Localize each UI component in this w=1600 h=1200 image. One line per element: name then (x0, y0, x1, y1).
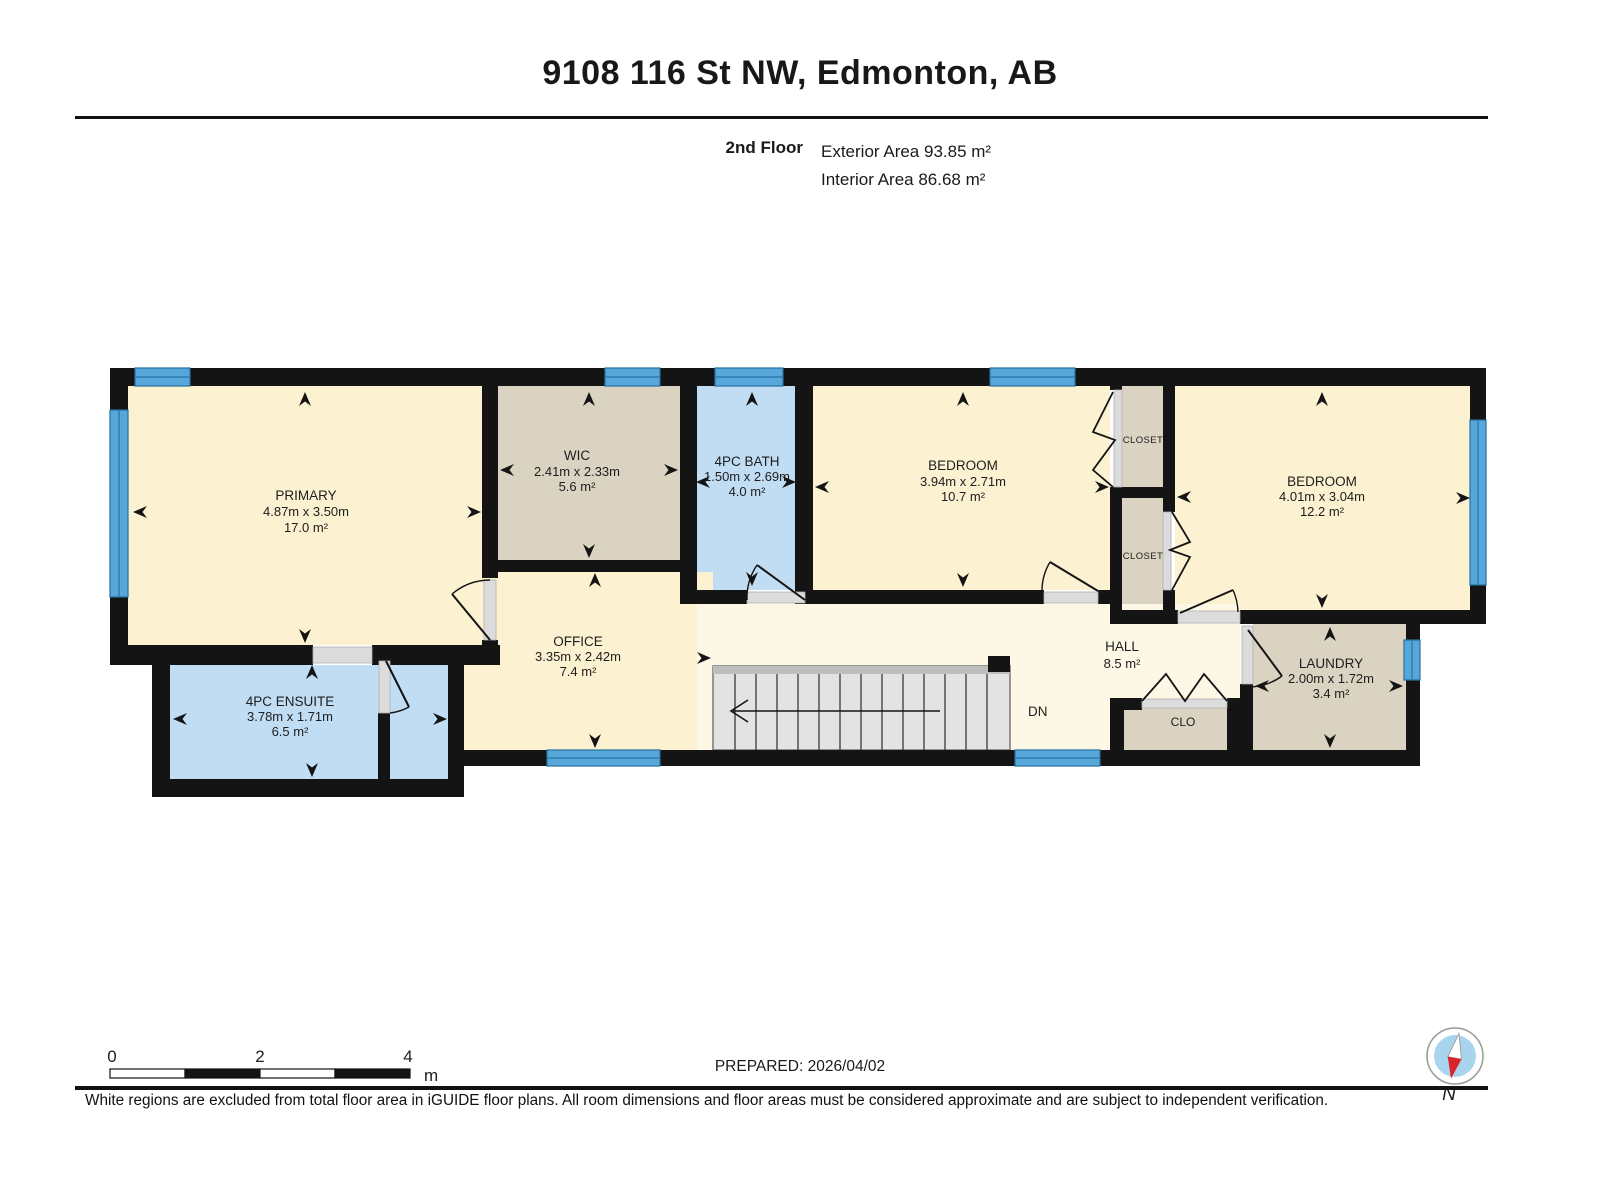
window (110, 410, 128, 597)
label-primary-dims: 4.87m x 3.50m (263, 504, 349, 519)
label-bedroom-right: BEDROOM (1287, 474, 1357, 489)
prepared-date: PREPARED: 2026/04/02 (0, 1058, 1600, 1076)
label-bedroom-middle-area: 10.7 m² (941, 489, 986, 504)
label-wic-area: 5.6 m² (559, 479, 597, 494)
label-bedroom-right-area: 12.2 m² (1300, 504, 1345, 519)
label-wic: WIC (564, 448, 590, 463)
window (1015, 750, 1100, 766)
label-bedroom-middle-dims: 3.94m x 2.71m (920, 474, 1006, 489)
label-closet-top: CLOSET (1123, 435, 1163, 446)
label-bedroom-right-dims: 4.01m x 3.04m (1279, 489, 1365, 504)
label-office-dims: 3.35m x 2.42m (535, 649, 621, 664)
window (135, 368, 190, 386)
label-hall: HALL (1105, 639, 1139, 654)
label-ensuite: 4PC ENSUITE (246, 694, 335, 709)
label-laundry: LAUNDRY (1299, 656, 1363, 671)
label-bedroom-middle: BEDROOM (928, 458, 998, 473)
label-bath: 4PC BATH (714, 454, 779, 469)
label-laundry-area: 3.4 m² (1313, 686, 1351, 701)
label-office: OFFICE (553, 634, 603, 649)
label-bath-dims: 1.50m x 2.69m (704, 469, 790, 484)
label-closet-bottom: CLOSET (1123, 551, 1163, 562)
label-ensuite-dims: 3.78m x 1.71m (247, 709, 333, 724)
window (1404, 640, 1420, 680)
label-bath-area: 4.0 m² (729, 484, 767, 499)
stairs (713, 666, 1010, 750)
label-wic-dims: 2.41m x 2.33m (534, 464, 620, 479)
disclaimer-text: White regions are excluded from total fl… (85, 1092, 1515, 1110)
label-ensuite-area: 6.5 m² (272, 724, 310, 739)
floorplan-page: 9108 116 St NW, Edmonton, AB 2nd Floor E… (0, 0, 1600, 1200)
label-stairs-dn: DN (1028, 704, 1048, 719)
stair-newel-post (988, 656, 1010, 672)
label-clo: CLO (1171, 715, 1196, 729)
label-hall-area: 8.5 m² (1104, 656, 1142, 671)
window (715, 368, 783, 386)
label-laundry-dims: 2.00m x 1.72m (1288, 671, 1374, 686)
label-primary: PRIMARY (275, 488, 336, 503)
window (990, 368, 1075, 386)
window (605, 368, 660, 386)
label-office-area: 7.4 m² (560, 664, 598, 679)
window (1470, 420, 1486, 585)
footer-divider (75, 1086, 1488, 1090)
window (547, 750, 660, 766)
floorplan-drawing: PRIMARY 4.87m x 3.50m 17.0 m² WIC 2.41m … (0, 0, 1600, 1200)
label-primary-area: 17.0 m² (284, 520, 329, 535)
stair-landing-edge (713, 666, 1010, 674)
